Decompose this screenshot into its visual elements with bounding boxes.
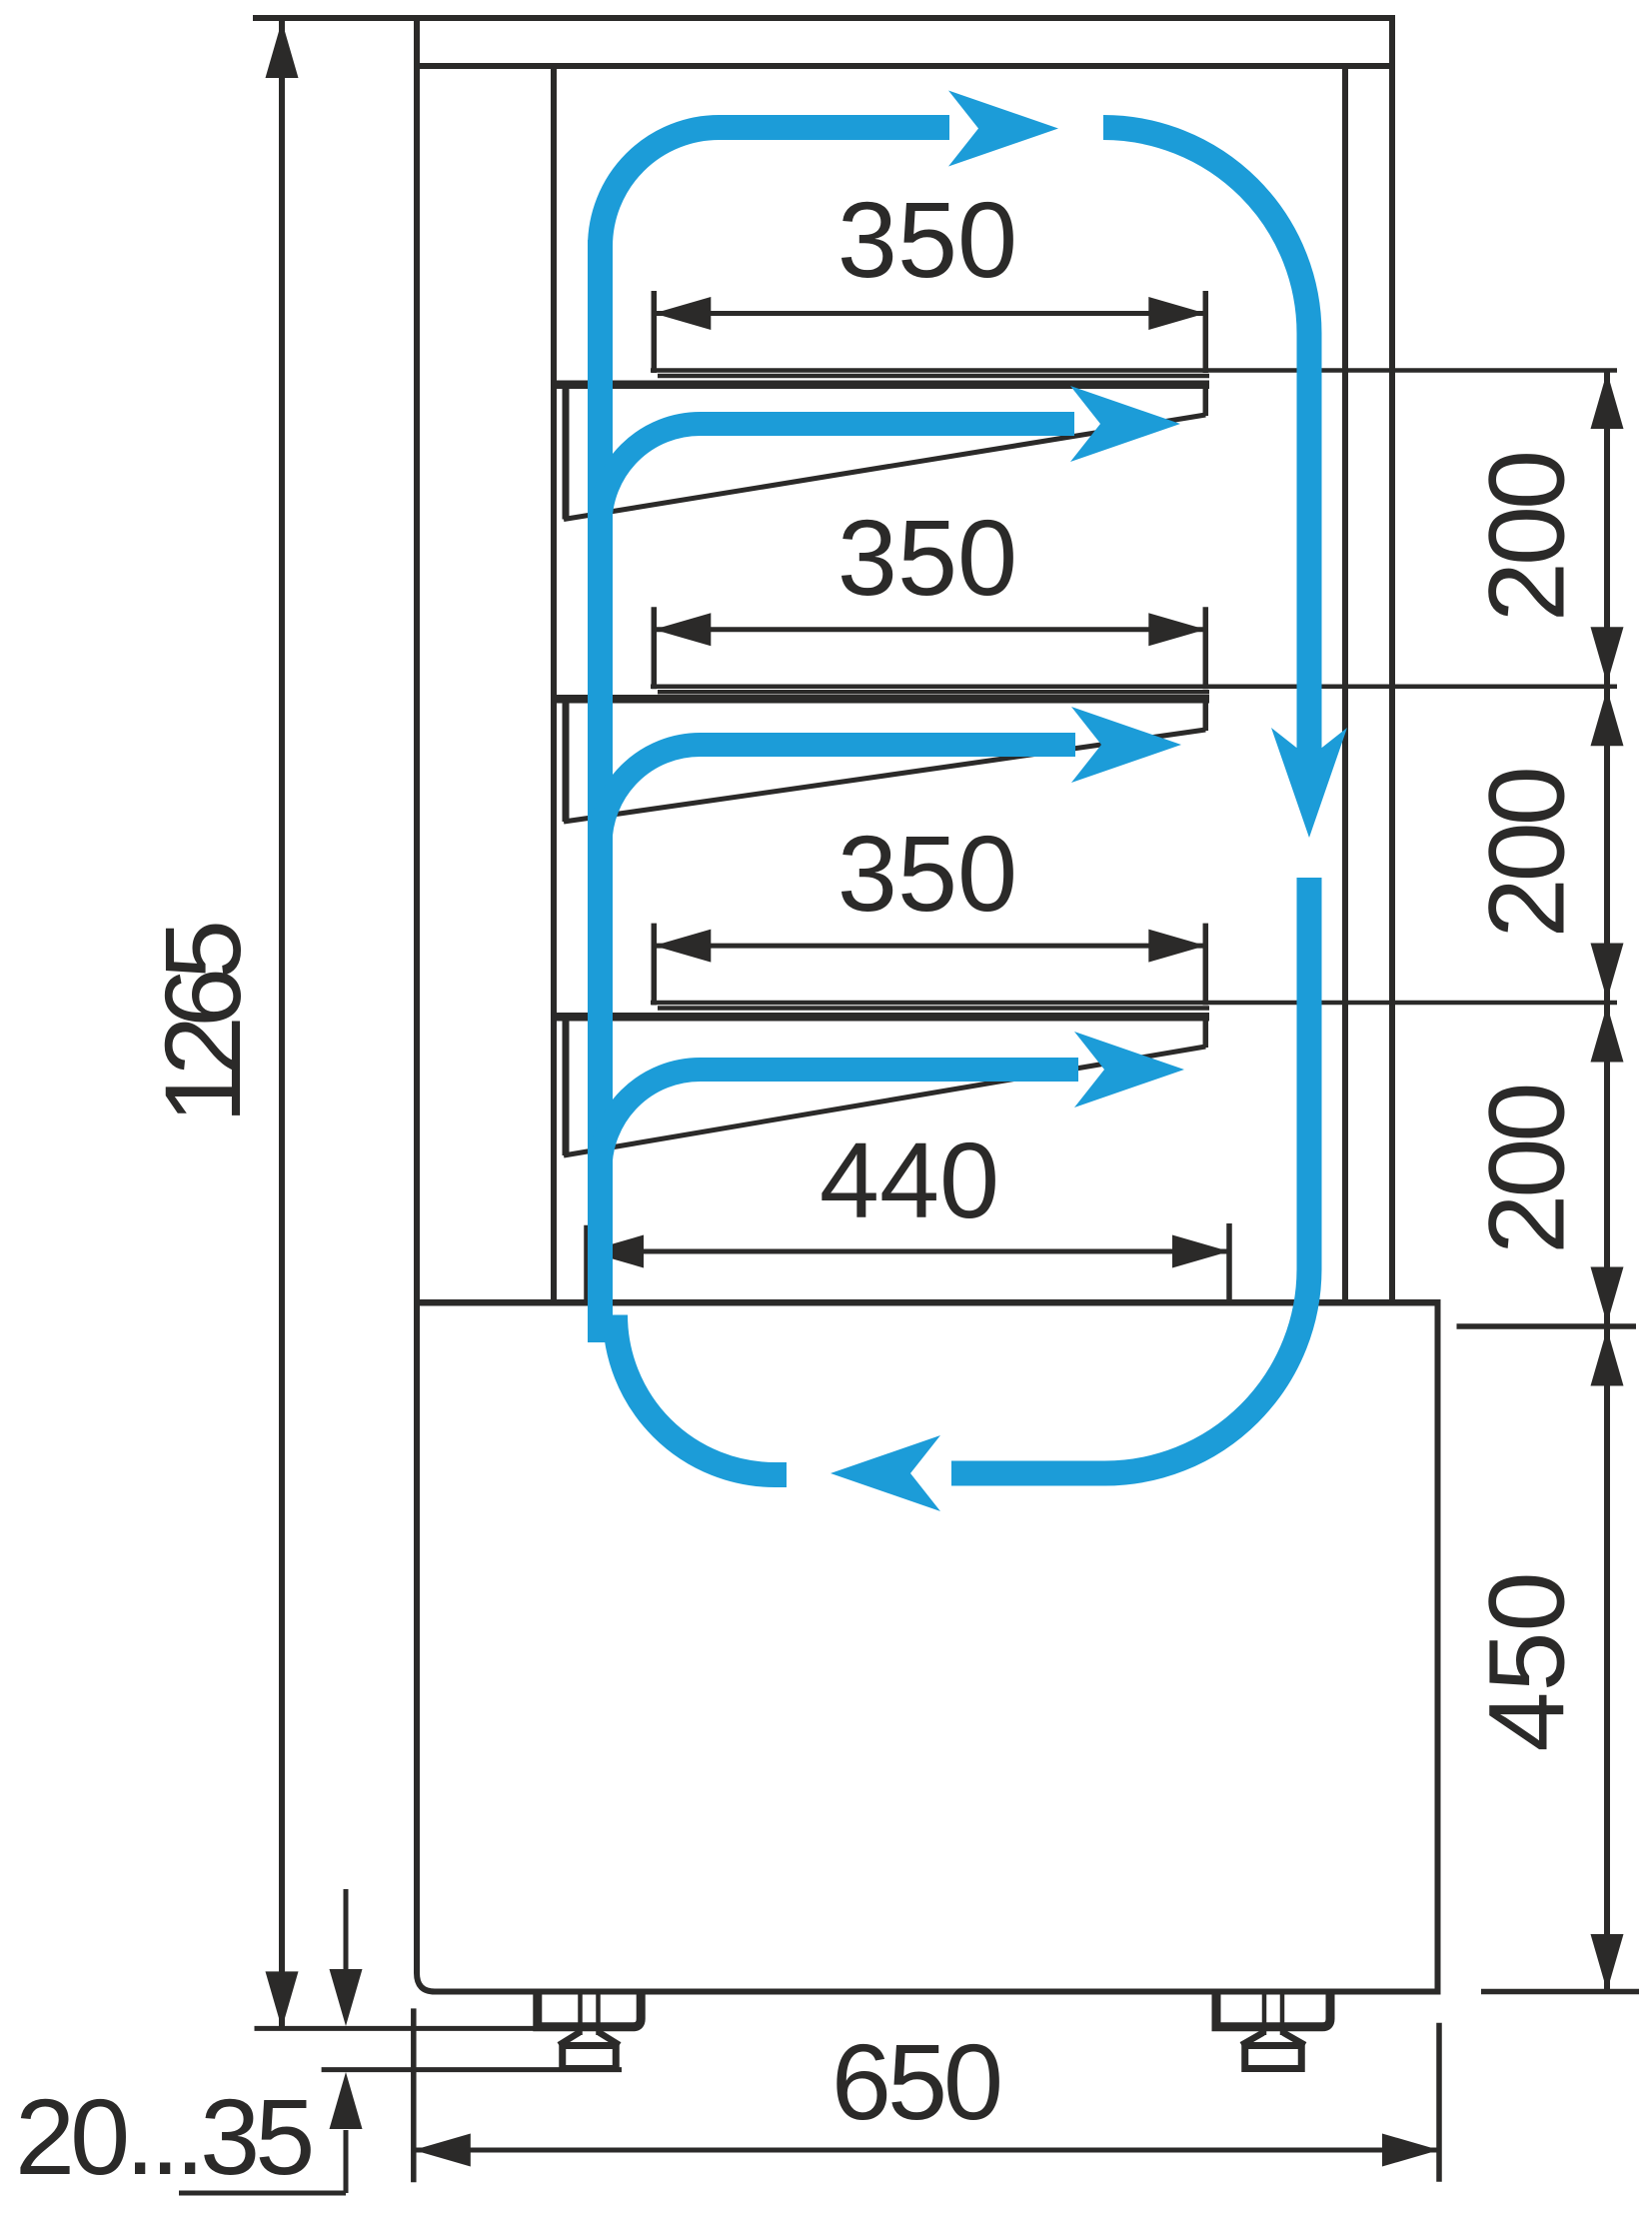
- svg-text:350: 350: [837, 179, 1017, 300]
- svg-text:200: 200: [1466, 454, 1587, 622]
- svg-text:200: 200: [1466, 770, 1587, 938]
- svg-text:440: 440: [820, 1119, 999, 1240]
- svg-text:650: 650: [831, 2021, 999, 2142]
- svg-text:20...35: 20...35: [15, 2076, 311, 2197]
- svg-text:450: 450: [1466, 1571, 1587, 1751]
- svg-text:1265: 1265: [142, 924, 263, 1123]
- svg-text:200: 200: [1466, 1086, 1587, 1253]
- svg-text:350: 350: [837, 497, 1017, 618]
- svg-text:350: 350: [837, 813, 1017, 934]
